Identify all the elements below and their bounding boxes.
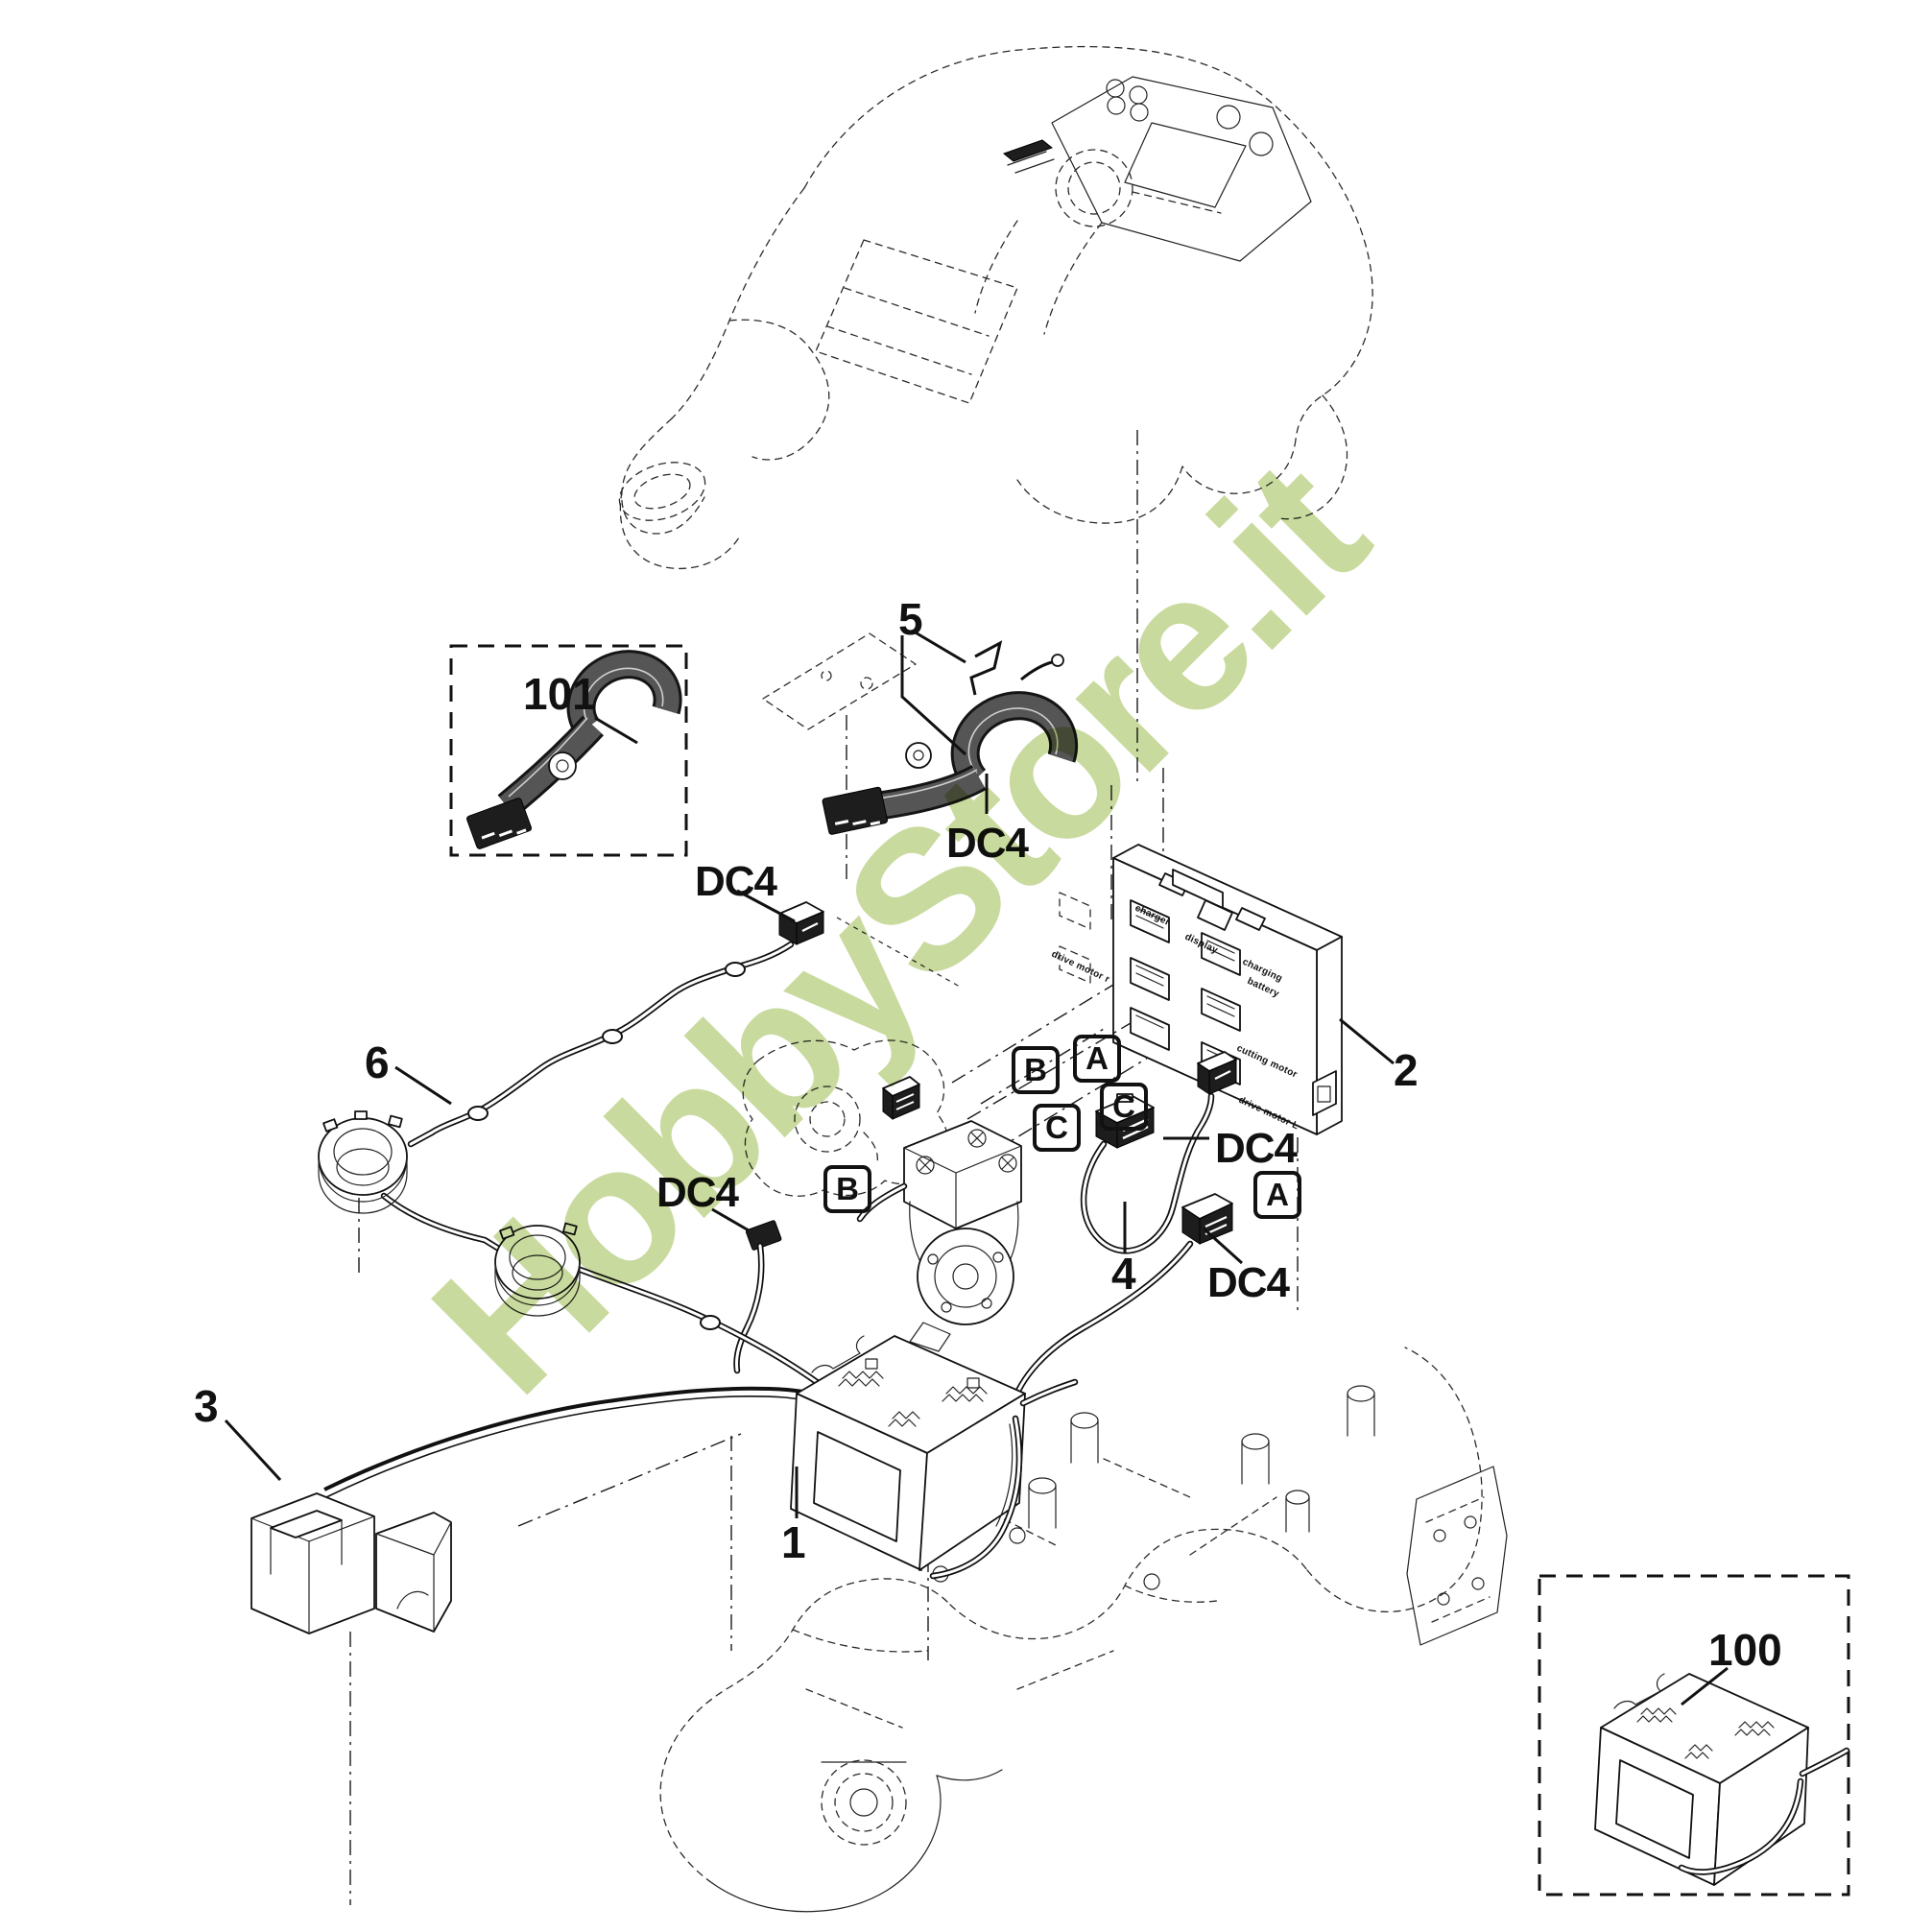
callout-5: 5 xyxy=(898,593,923,645)
callout-6: 6 xyxy=(365,1037,390,1088)
harness-connector xyxy=(779,902,823,944)
callout-slot-b-2: B xyxy=(823,1165,871,1213)
callout-1: 1 xyxy=(781,1516,806,1568)
drive-motor-connector xyxy=(883,1077,919,1119)
cutting-motor xyxy=(712,1121,1021,1371)
leader-2 xyxy=(1340,1019,1394,1063)
callout-101: 101 xyxy=(523,668,597,720)
leader-101 xyxy=(595,718,637,743)
part-100-battery xyxy=(1539,1576,1849,1895)
callout-slot-c-2: C xyxy=(1033,1104,1081,1152)
callout-slot-b-1: B xyxy=(1012,1046,1060,1094)
leader-3 xyxy=(226,1420,280,1480)
ring-sensor-left xyxy=(319,1111,407,1276)
exploded-parts-diagram: charger display drive motor r charging b… xyxy=(0,0,1932,1932)
callout-slot-c-1: C xyxy=(1100,1083,1148,1131)
callout-slot-a-1: A xyxy=(1073,1035,1121,1083)
callout-dc4-upper: DC4 xyxy=(1215,1125,1297,1173)
ring-sensor-right xyxy=(495,1224,580,1316)
board-label-drive-motor-r: drive motor r xyxy=(1050,949,1111,986)
callout-slot-a-2: A xyxy=(1253,1171,1301,1219)
callout-dc4-ribbon: DC4 xyxy=(946,820,1028,868)
mower-top-housing xyxy=(612,47,1373,785)
callout-2: 2 xyxy=(1394,1044,1419,1096)
pcb-plate-ghost xyxy=(763,633,916,729)
callout-dc4-lower: DC4 xyxy=(1207,1259,1289,1307)
callout-4: 4 xyxy=(1111,1248,1136,1300)
callout-dc4-harness: DC4 xyxy=(695,858,776,906)
diagram-line-art: charger display drive motor r charging b… xyxy=(0,0,1932,1932)
callout-100: 100 xyxy=(1708,1624,1782,1676)
callout-3: 3 xyxy=(194,1380,219,1432)
leader-6 xyxy=(395,1067,451,1104)
connector-c-plug xyxy=(1182,1194,1232,1244)
callout-dc4-motor: DC4 xyxy=(656,1169,738,1217)
